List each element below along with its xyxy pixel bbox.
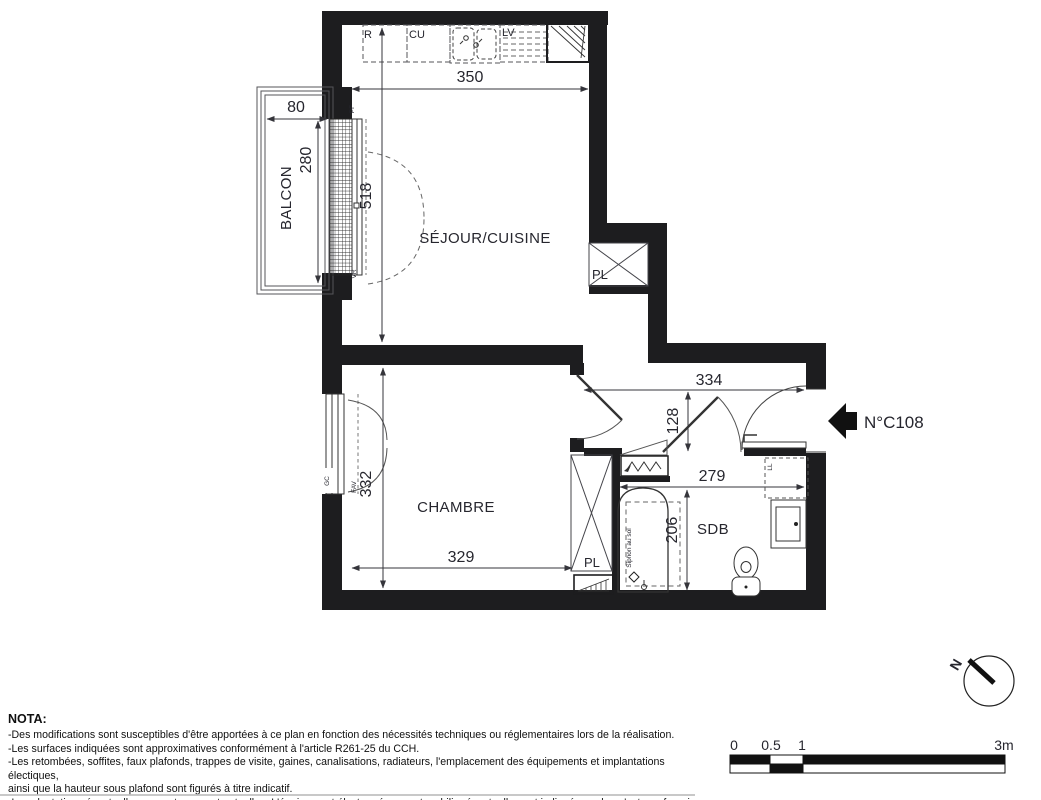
balcony-guardrail-grid [330,119,352,275]
nota-line: -Des modifications sont susceptibles d'ê… [8,729,708,743]
radiator [621,456,668,476]
dim-bedroom-depth: 332 [358,471,375,498]
radiator-shelf [620,440,667,455]
wall-balcony-stub-top [322,87,352,119]
duct-hatch [551,26,585,58]
label-washing-machine: LL [767,463,774,471]
dim-bathroom-depth: 206 [664,517,681,544]
bedroom-door-swing [577,420,622,439]
dim-hall-width: 334 [696,372,723,389]
dim-living-width: 350 [457,69,484,86]
scale-seg-2a [730,764,770,773]
label-bedroom-window: FAV [351,480,358,492]
scale-tick-0: 0 [730,737,738,753]
walls [322,11,826,610]
radiator-arrow-icon [624,465,631,472]
entrance-label: N°C108 [864,413,924,432]
dim-living-depth: 518 [358,183,375,210]
wall-right-upper [806,343,826,389]
dim-bathroom-width: 279 [699,468,726,485]
bedroom-window-swing-top [348,400,387,440]
compass: N [946,656,1014,706]
dim-bedroom-width: 329 [448,549,475,566]
entrance-arrow-icon [828,403,857,439]
bathroom [618,440,808,596]
floor-plan-page: BALCON 80 280 PF VR R CU LV 350 518 [0,0,1041,800]
sink-bowl-left [453,28,474,60]
nota-line: -Les retombées, soffites, faux plafonds,… [8,756,708,783]
scale-tick-3m: 3m [994,737,1013,753]
wall-radiator-nook [616,476,670,482]
nota-title: NOTA: [8,712,708,726]
sink-unit [450,25,500,63]
balcony-rail-mid [261,91,329,290]
label-pf: PF [349,105,356,113]
french-door-swing-top [368,152,424,218]
label-kitchen-unit: CU [409,29,425,41]
scale-seg-1c [803,755,1005,764]
wall-right-lower [806,453,826,610]
scale-seg-1b [770,755,803,764]
scale-tick-05: 0.5 [761,737,781,753]
wall-hall-top [648,343,826,363]
dim-balcony-depth: 280 [298,147,315,174]
wall-living-bedroom [342,345,583,365]
entrance-door-swing [742,386,806,450]
compass-north-label: N [946,656,965,673]
scale-tick-1: 1 [798,737,806,753]
wall-closet-bath [612,455,620,590]
scale-seg-2c [803,764,1005,773]
bathroom-label: SDB [697,521,729,538]
label-closet-living: PL [592,267,608,282]
wall-left-upper [322,11,342,89]
label-closet-bedroom: PL [584,555,600,570]
dim-balcony-width: 80 [287,99,305,116]
label-dishwasher: LV [502,27,515,39]
faucet-icon [460,36,482,48]
radiator-zigzag-icon [626,462,661,471]
tub-faucet-icon [642,585,647,590]
vanity-handle-icon [794,522,798,526]
label-vr: VR [351,269,358,278]
entrance-door-handle [744,435,757,442]
wall-mid-vertical [648,223,667,363]
floor-plan-drawing: BALCON 80 280 PF VR R CU LV 350 518 [0,0,1041,800]
balcony-rail-inner [265,95,325,286]
label-fridge: R [364,29,372,41]
scale-bar: 0 0.5 1 3m [730,737,1014,773]
wall-bedroom-door-jamb-bottom [570,438,584,452]
living-room-label: SÉJOUR/CUISINE [419,230,550,247]
wall-balcony-stub-bottom [322,273,352,300]
scale-seg-2b [770,764,803,773]
page-edge-line [0,794,695,796]
nota-block: NOTA: -Des modifications sont susceptibl… [8,712,708,800]
label-floor-drain: Siphon au sol [626,528,633,568]
balcony-label: BALCON [278,166,295,230]
floor-drain-icon [629,572,639,582]
entrance-door-leaf [742,442,806,448]
label-guardrail: GC [324,476,331,486]
dim-hall-depth: 128 [665,408,682,435]
toilet-button-icon [745,586,748,589]
bedroom-label: CHAMBRE [417,499,495,516]
bedroom-door-leaf [577,375,622,420]
toilet-bowl [734,547,758,579]
scale-seg-1a [730,755,770,764]
wall-hall-bath-right [744,448,806,456]
balcony-rail-outer [257,87,333,294]
toilet-drain [741,562,751,573]
nota-line: -Les surfaces indiquées sont approximati… [8,743,708,757]
french-door-swing-bottom [368,218,424,284]
bathroom-door-swing [718,397,741,452]
duct-2-hatch [578,579,609,591]
wall-kitchen-right [589,11,607,243]
wall-bedroom-door-jamb-top [570,363,584,375]
compass-needle [969,660,994,683]
sink-bowl-right [477,29,496,59]
wall-left-middle [322,298,342,394]
